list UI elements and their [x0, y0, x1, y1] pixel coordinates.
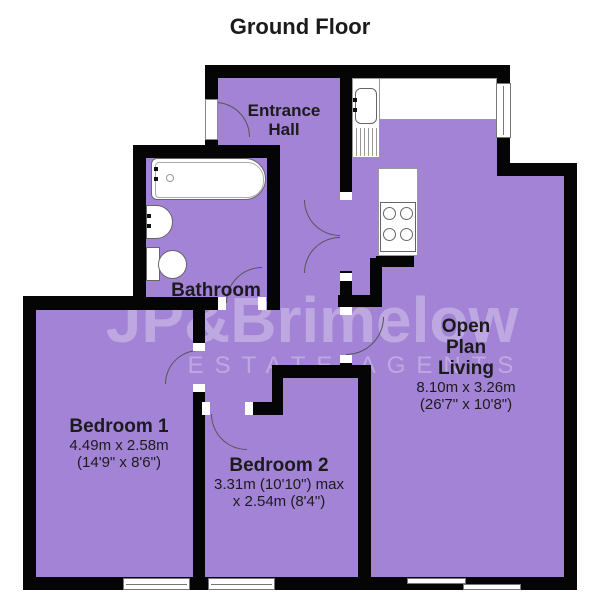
- window-kitchen-right: [496, 83, 511, 138]
- wall-outer-left: [23, 296, 36, 590]
- sink-tap-icon: [353, 108, 357, 112]
- floor-plan: Ground Floor JP&Brimelow ESTATE AGENTS: [0, 0, 600, 600]
- wall-hall-kitchen-divider-upper: [340, 78, 352, 200]
- window-bedroom2: [208, 578, 275, 590]
- sink-drainer-icon: [356, 128, 377, 156]
- label-entrance-hall: Entrance Hall: [248, 101, 321, 139]
- label-open-plan-living: Open Plan Living 8.10m x 3.26m (26'7" x …: [416, 316, 515, 413]
- wall-top: [205, 65, 510, 78]
- label-bedroom1: Bedroom 1 4.49m x 2.58m (14'9" x 8'6"): [69, 416, 168, 471]
- wall-bedroom2-top-left: [253, 402, 283, 415]
- door-stop: [193, 384, 205, 392]
- wall-bedroom1-right-lower: [193, 392, 205, 577]
- toilet-bowl-icon: [158, 250, 187, 279]
- hob-burner-icon: [383, 207, 396, 220]
- wall-hob-stub: [376, 256, 414, 267]
- basin-tap-icon: [147, 214, 151, 218]
- label-bathroom: Bathroom: [171, 280, 261, 301]
- sink-tap-icon: [353, 98, 357, 102]
- wall-outer-right: [564, 163, 577, 590]
- wall-living-west-lower: [358, 371, 371, 577]
- bath-drain-icon: [166, 174, 174, 182]
- wall-kitchen-nook-horizontal: [338, 295, 382, 307]
- patio-slider-leaf-left: [407, 578, 466, 584]
- wall-bathroom-left: [133, 145, 146, 310]
- door-stop: [340, 192, 352, 200]
- door-stop: [340, 307, 352, 315]
- window-bedroom1: [123, 578, 190, 590]
- label-bedroom2: Bedroom 2 3.31m (10'10") max x 2.54m (8'…: [214, 455, 344, 510]
- basin-tap-icon: [147, 224, 151, 228]
- kitchen-sink-bowl-icon: [355, 88, 377, 124]
- page-title: Ground Floor: [230, 14, 371, 40]
- wall-bedroom1-top: [23, 296, 146, 310]
- entrance-door: [205, 99, 218, 140]
- wall-below-right-window: [497, 138, 510, 176]
- wall-bathroom-top: [133, 145, 280, 158]
- wall-bathroom-right: [267, 145, 280, 310]
- wall-bedroom2-top-right: [272, 365, 371, 378]
- hob-burner-icon: [383, 228, 396, 241]
- wall-entrance-left-upper: [205, 65, 218, 99]
- hob-burner-icon: [400, 228, 413, 241]
- door-stop: [340, 273, 352, 281]
- hob-burner-icon: [400, 207, 413, 220]
- wall-bedroom1-right-upper: [193, 310, 205, 343]
- door-stop: [245, 402, 253, 415]
- door-stop: [193, 343, 205, 351]
- bath-tap-icon: [154, 177, 158, 181]
- door-stop: [202, 402, 210, 415]
- door-stop: [340, 355, 352, 363]
- bath-tap-icon: [154, 167, 158, 171]
- patio-slider-leaf-right: [463, 584, 521, 590]
